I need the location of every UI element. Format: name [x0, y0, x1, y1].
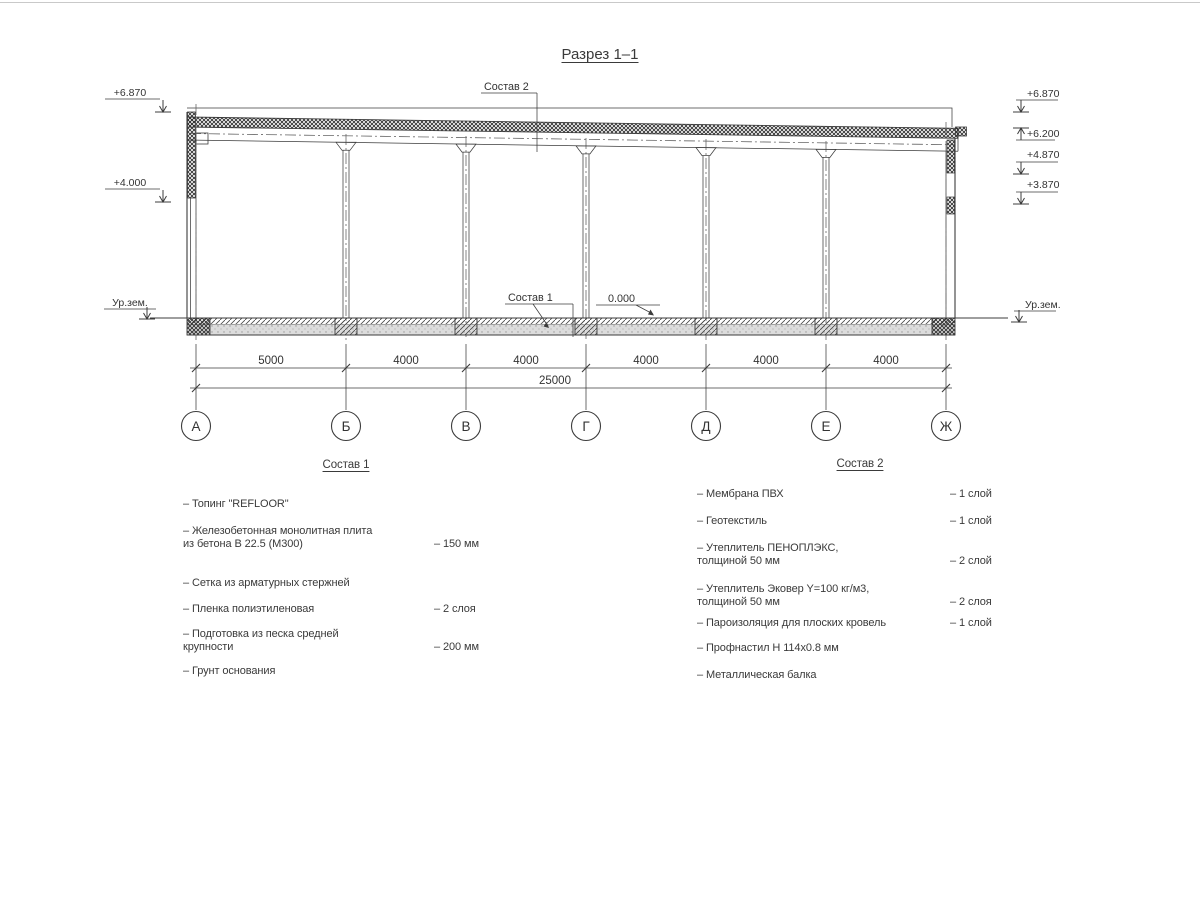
column-g: [576, 138, 596, 340]
ground-level-left-label: Ур.зем.: [112, 297, 148, 309]
elevation-arrow-icon: [1013, 162, 1029, 174]
roof-end-cap: [956, 127, 967, 136]
roof-insulation-layer: [187, 117, 958, 138]
dim-span-6: 4000: [873, 355, 899, 367]
zero-level-label: 0.000: [608, 293, 635, 305]
dim-span-1: 5000: [258, 355, 284, 367]
material-row: – Геотекстиль – 1 слой: [697, 515, 1025, 528]
elevation-marks-left: +6.870 +4.000 Ур.зем.: [104, 87, 171, 319]
zero-level-arrowhead: [648, 310, 654, 316]
left-wall-beam-bracket: [196, 133, 208, 144]
material-row: – Пленка полиэтиленовая – 2 слоя: [183, 603, 511, 616]
material-row: – Мембрана ПВХ – 1 слой: [697, 488, 1025, 501]
column-b: [336, 134, 356, 340]
column-v: [456, 136, 476, 340]
axis-label-b: Б: [342, 419, 351, 434]
dimension-extension-lines: [196, 344, 946, 410]
material-row: – Пароизоляция для плоских кровель – 1 с…: [697, 617, 1025, 630]
elevation-arrow-icon: [1013, 100, 1029, 112]
axis-bubbles: А Б В Г Д Е Ж: [182, 412, 961, 441]
left-wall-insulation: [188, 112, 196, 198]
left-wall: [187, 112, 208, 318]
roof-beam-underside: [187, 140, 958, 151]
material-row: – Профнастил Н 114х0.8 мм: [697, 642, 1025, 655]
elevation-arrow-icon: [155, 190, 171, 202]
callouts: Состав 2 Состав 1 0.000: [481, 81, 660, 337]
axis-label-zh: Ж: [940, 419, 953, 434]
footing-axis-e: [815, 318, 837, 335]
right-wall-insulation-upper: [947, 140, 955, 173]
footing-axis-d: [695, 318, 717, 335]
axis-label-d: Д: [701, 419, 710, 434]
sostav1-heading: Состав 1: [181, 459, 511, 472]
material-row: – Утеплитель ПЕНОПЛЭКС, толщиной 50 мм –…: [697, 542, 1025, 568]
material-row: – Железобетонная монолитная плита из бет…: [183, 525, 511, 551]
material-list-sostav2: Состав 2 – Мембрана ПВХ – 1 слой – Геоте…: [695, 448, 1025, 698]
callout-sostav1-label: Состав 1: [508, 292, 553, 304]
elevation-arrow-icon: [155, 100, 171, 112]
axis-label-g: Г: [582, 419, 590, 434]
ground-level-right-label: Ур.зем.: [1025, 299, 1061, 311]
material-row: – Сетка из арматурных стержней: [183, 577, 511, 590]
floor-slab: [150, 318, 1008, 335]
column-e: [816, 141, 836, 340]
elevation-right-6870: +6.870: [1027, 88, 1060, 100]
material-list-sostav1: Состав 1 – Топинг "REFLOOR" – Железобето…: [181, 455, 511, 695]
dim-span-2: 4000: [393, 355, 419, 367]
material-row: – Топинг "REFLOOR": [183, 498, 511, 511]
callout-sostav2-label: Состав 2: [484, 81, 529, 93]
axis-label-v: В: [461, 419, 470, 434]
footing-axis-b: [335, 318, 357, 335]
dim-span-3: 4000: [513, 355, 539, 367]
material-row: – Грунт основания: [183, 665, 511, 678]
elevation-arrow-icon: [1013, 192, 1029, 204]
material-row: – Металлическая балка: [697, 669, 1025, 682]
roof-assembly: [187, 108, 967, 151]
material-row: – Утеплитель Эковер Y=100 кг/м3, толщино…: [697, 583, 1025, 609]
slab-topping-layer: [187, 319, 955, 325]
column-d: [696, 139, 716, 340]
elevation-left-6870: +6.870: [114, 87, 147, 99]
section-drawing: Состав 2 Состав 1 0.000 +6.870 +4.000 Ур…: [0, 0, 1200, 450]
elevation-right-6200: +6.200: [1027, 128, 1060, 140]
right-wall: [946, 138, 955, 318]
drawing-sheet: { "title": "Разрез 1–1", "drawing": { "c…: [0, 0, 1200, 900]
material-row: – Подготовка из песка средней крупности …: [183, 628, 511, 654]
elevation-arrow-icon: [1011, 310, 1027, 322]
footing-axis-a: [187, 318, 210, 335]
footing-axis-v: [455, 318, 477, 335]
slab-sand-layer: [187, 325, 955, 336]
elevation-marks-right: +6.870 +6.200 +4.870 +3.870 Ур.зем.: [1011, 88, 1061, 322]
sostav2-heading: Состав 2: [695, 458, 1025, 471]
footing-axis-zh: [932, 318, 955, 335]
dim-span-5: 4000: [753, 355, 779, 367]
elevation-right-4870: +4.870: [1027, 149, 1060, 161]
right-wall-insulation-lower: [947, 197, 955, 214]
footing-axis-g: [575, 318, 597, 335]
dimension-lines: 5000 4000 4000 4000 4000 4000 25000: [190, 344, 952, 410]
elevation-left-4000: +4.000: [114, 177, 147, 189]
elevation-right-3870: +3.870: [1027, 179, 1060, 191]
dim-span-4: 4000: [633, 355, 659, 367]
dim-total: 25000: [539, 375, 571, 387]
axis-label-e: Е: [821, 419, 830, 434]
axis-label-a: А: [191, 419, 200, 434]
